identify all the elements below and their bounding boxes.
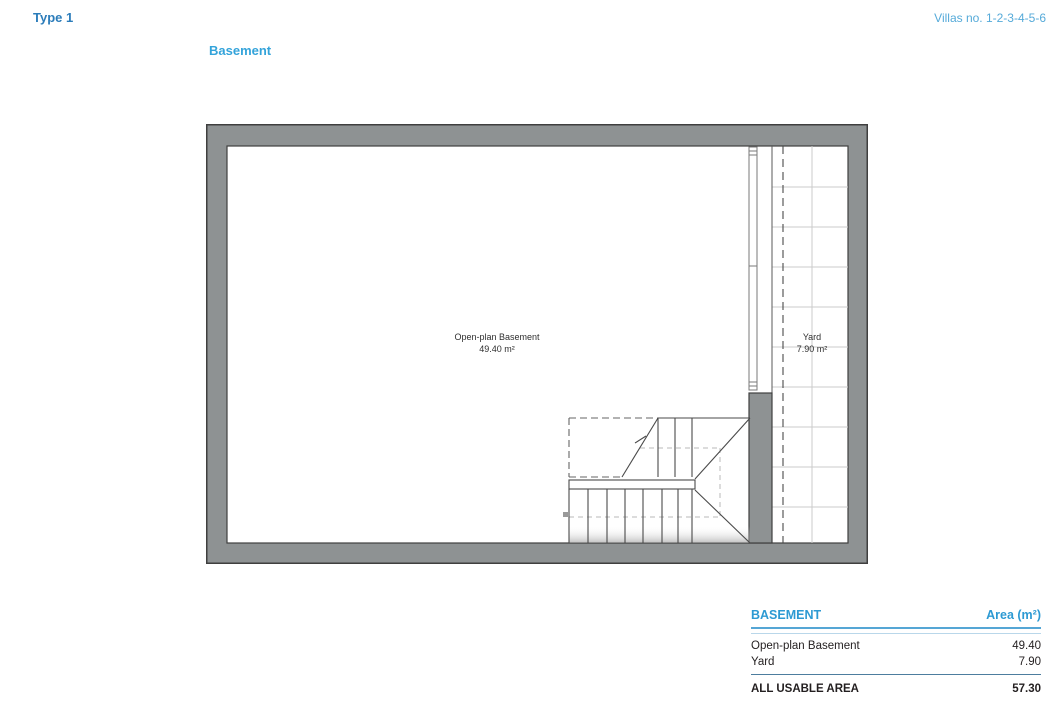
table-header-row: BASEMENT Area (m²) (751, 608, 1041, 629)
floor-plan-page: Type 1 Villas no. 1-2-3-4-5-6 Basement (0, 0, 1062, 720)
room-label-yard: Yard 7.90 m² (757, 331, 867, 355)
floor-title: Basement (209, 43, 271, 58)
room-label-openplan: Open-plan Basement 49.40 m² (397, 331, 597, 355)
villas-label: Villas no. 1-2-3-4-5-6 (934, 11, 1046, 25)
room-area: 49.40 m² (397, 343, 597, 355)
row-label: Yard (751, 654, 774, 670)
room-name: Open-plan Basement (397, 331, 597, 343)
table-area-column-header: Area (m²) (986, 608, 1041, 622)
window-strip (749, 147, 757, 390)
table-row: Yard 7.90 (751, 654, 1041, 670)
stair-marker (563, 512, 568, 517)
floor-plan: Open-plan Basement 49.40 m² Yard 7.90 m² (206, 124, 868, 564)
room-area: 7.90 m² (757, 343, 867, 355)
table-body: Open-plan Basement 49.40 Yard 7.90 (751, 634, 1041, 670)
stub-wall (749, 393, 772, 543)
table-row: Open-plan Basement 49.40 (751, 638, 1041, 654)
room-name: Yard (757, 331, 867, 343)
total-value: 57.30 (1012, 683, 1041, 695)
area-summary-table: BASEMENT Area (m²) Open-plan Basement 49… (751, 608, 1041, 695)
table-total-row: ALL USABLE AREA 57.30 (751, 674, 1041, 695)
total-label: ALL USABLE AREA (751, 683, 859, 695)
row-value: 49.40 (1012, 638, 1041, 654)
row-label: Open-plan Basement (751, 638, 860, 654)
table-title: BASEMENT (751, 608, 821, 622)
type-label: Type 1 (33, 10, 73, 25)
row-value: 7.90 (1019, 654, 1041, 670)
